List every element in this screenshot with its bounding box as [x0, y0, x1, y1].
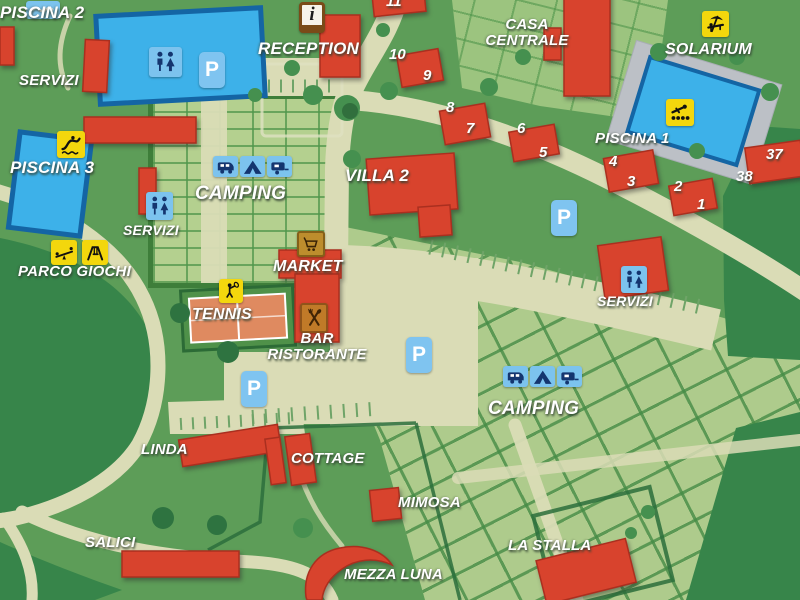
parking-glyph: P — [557, 206, 571, 230]
campground-map: i P P P P — [0, 0, 800, 600]
site-number-8: 8 — [446, 99, 454, 116]
label-servizi-nw: SERVIZI — [19, 72, 79, 89]
site-number-10: 10 — [389, 46, 406, 63]
info-glyph: i — [309, 5, 314, 24]
seesaw-icon — [51, 240, 77, 265]
parking-glyph: P — [412, 343, 426, 367]
label-piscina-2: PISCINA 2 — [0, 3, 84, 23]
caravan-icon-east — [557, 366, 582, 387]
camper-icon-west — [213, 156, 238, 177]
label-market: MARKET — [273, 258, 343, 276]
building-nw-strip — [0, 27, 14, 65]
label-solarium: SOLARIUM — [665, 41, 752, 59]
label-casa-centrale-line2: CENTRALE — [468, 33, 586, 49]
site-number-2: 2 — [674, 178, 682, 195]
building-servizi-nw — [84, 117, 196, 143]
building-cottage-1 — [265, 437, 286, 485]
label-casa-centrale-line1: CASA — [468, 17, 586, 33]
swing-icon — [82, 240, 108, 265]
building-mimosa — [370, 488, 402, 522]
restroom-icon-east — [621, 266, 647, 293]
label-villa-2: VILLA 2 — [345, 166, 409, 186]
label-reception: RECEPTION — [258, 39, 359, 59]
tennis-player-icon — [219, 279, 243, 303]
label-mimosa: MIMOSA — [398, 494, 461, 511]
label-camping-west: CAMPING — [195, 183, 286, 205]
label-bar-ristorante: BAR RISTORANTE — [252, 331, 382, 363]
parking-icon-central: P — [406, 337, 432, 373]
waterslide-icon — [57, 131, 85, 158]
building-nw — [83, 39, 110, 92]
site-number-3: 3 — [627, 173, 635, 190]
label-mezza-luna: MEZZA LUNA — [344, 566, 443, 583]
site-number-5: 5 — [539, 144, 547, 161]
tent-icon-west — [240, 156, 265, 177]
label-salici: SALICI — [85, 534, 135, 551]
parking-icon-nw: P — [199, 52, 225, 88]
camper-icon-east — [503, 366, 528, 387]
label-tennis: TENNIS — [192, 306, 252, 324]
sunbed-icon — [702, 11, 729, 37]
site-number-38: 38 — [736, 168, 753, 185]
label-servizi-west: SERVIZI — [123, 222, 179, 238]
caravan-icon-west — [267, 156, 292, 177]
site-number-4: 4 — [609, 153, 617, 170]
label-linda: LINDA — [141, 441, 188, 458]
label-piscina-3: PISCINA 3 — [10, 158, 94, 178]
parking-icon-southwest: P — [241, 371, 267, 407]
restroom-icon-west — [146, 192, 173, 220]
label-piscina-1: PISCINA 1 — [595, 130, 670, 147]
parking-icon-east: P — [551, 200, 577, 236]
site-number-1: 1 — [697, 196, 705, 213]
site-number-37: 37 — [766, 146, 783, 163]
swimmer-icon — [666, 99, 694, 126]
label-la-stalla: LA STALLA — [508, 537, 591, 554]
parking-glyph: P — [205, 58, 219, 82]
restroom-icon-nw — [149, 47, 182, 77]
label-bar-line1: BAR — [252, 331, 382, 347]
label-parco-giochi: PARCO GIOCHI — [18, 263, 131, 280]
label-servizi-east: SERVIZI — [597, 293, 653, 309]
label-camping-east: CAMPING — [488, 398, 579, 420]
site-number-11: 11 — [386, 0, 402, 10]
site-number-6: 6 — [517, 120, 525, 137]
tent-icon-east — [530, 366, 555, 387]
building-salici — [122, 551, 239, 577]
shopping-cart-icon — [297, 231, 325, 257]
site-number-7: 7 — [466, 120, 474, 137]
fork-spoon-icon — [300, 303, 328, 333]
parking-glyph: P — [247, 377, 261, 401]
building-villa-2-wing — [418, 205, 452, 237]
label-bar-line2: RISTORANTE — [252, 347, 382, 363]
label-cottage: COTTAGE — [291, 450, 365, 467]
site-number-9: 9 — [423, 67, 431, 84]
info-icon: i — [299, 2, 325, 33]
info-strip — [302, 25, 322, 30]
label-casa-centrale: CASA CENTRALE — [468, 17, 586, 49]
